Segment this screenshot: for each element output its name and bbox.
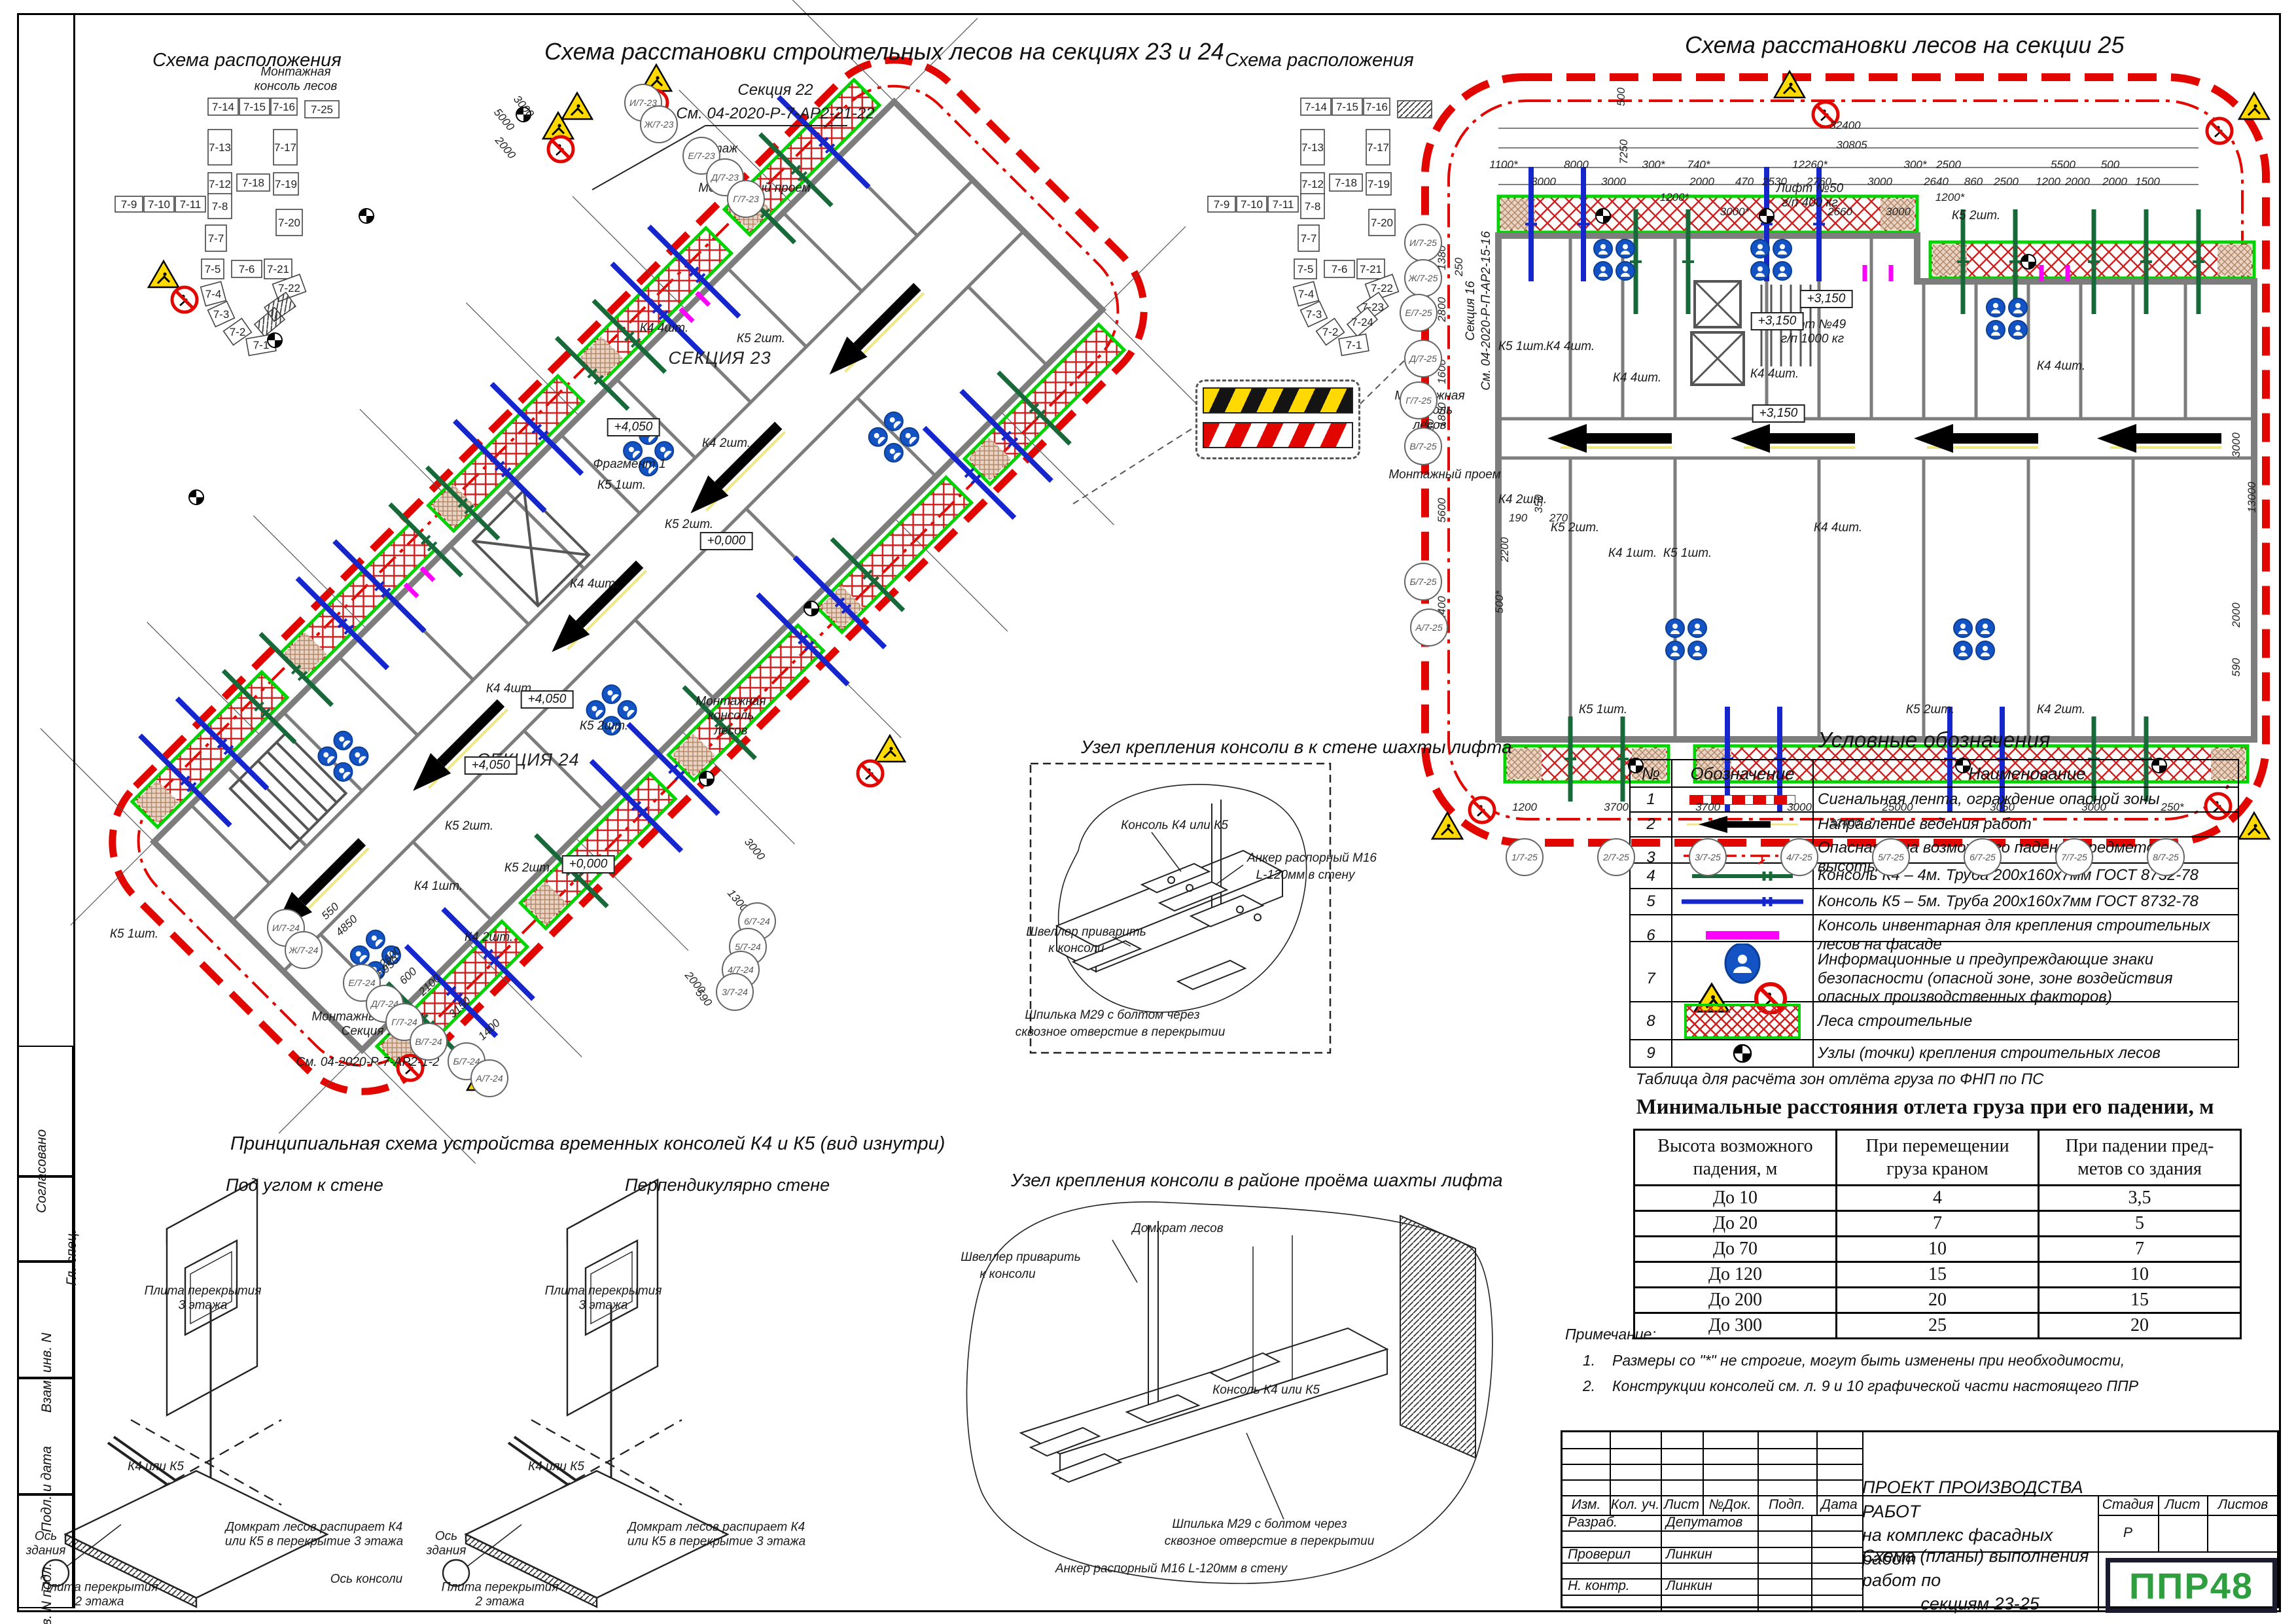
titleblock-stage-header: Лист: [2158, 1495, 2207, 1515]
elevation-mark: +0,000: [562, 855, 615, 874]
black-yellow-tape-icon: [1203, 387, 1353, 414]
legend-row: 7 Информационные и предупреждающие знаки…: [1631, 941, 2238, 1001]
legend-row: 9 Узлы (точки) крепления строительных ле…: [1631, 1039, 2238, 1067]
legend-row-num: 4: [1631, 864, 1671, 888]
node2-label-shveller-2: к консоли: [980, 1267, 1035, 1282]
plan25-dimension: 300*: [1642, 158, 1665, 171]
pr-axisb-2: здания: [427, 1544, 467, 1558]
plan25-dimension: 1200: [2036, 175, 2060, 188]
plan23-label: Монтажная консоль лесов: [255, 65, 338, 95]
drawing-sheet: 7-147-157-167-257-137-177-127-187-197-97…: [0, 0, 2296, 1624]
console-k5-icon: [1680, 896, 1805, 908]
grid-axis-bubble: В/7-24: [410, 1023, 448, 1061]
ft-h3b: метов со здания: [2077, 1159, 2202, 1179]
legend-row: 2 Направление ведения работ: [1631, 811, 2238, 836]
plan25-dimension: 2760: [1807, 175, 1831, 188]
legend-header-num: №: [1631, 760, 1671, 786]
project-title-line1: ПРОЕКТ ПРОИЗВОДСТВА РАБОТ: [1862, 1475, 2098, 1523]
titleblock-header: Дата: [1816, 1495, 1862, 1515]
pl-slab3-1: Плита перекрытия: [145, 1284, 262, 1298]
plan25-dimension: 3000: [1601, 175, 1626, 188]
legend-title: Условные обозначения: [1629, 728, 2239, 752]
plan25-label: К5 1шт.: [1579, 703, 1627, 717]
grid-axis-bubble: И/7-25: [1404, 224, 1442, 262]
plan25-dimension: 3000: [1867, 175, 1892, 188]
plan25-dimension: 1200*: [1935, 191, 1964, 204]
plan25-dimension: 2800: [1436, 297, 1449, 322]
plan25-dimension: 3050: [1990, 801, 2015, 814]
plan25-label: Монтажный проем: [1388, 468, 1500, 482]
grid-axis-bubble: 2/7-25: [1597, 838, 1635, 876]
fall-table-row: До 2075: [1634, 1211, 2241, 1237]
grid-axis-bubble: Г/7-23: [727, 180, 765, 218]
plan25-label: Секция 16: [1464, 281, 1478, 340]
pr-k: К4 или К5: [528, 1460, 584, 1474]
note-1-num: 1.: [1565, 1352, 1612, 1370]
ft-h1a: Высота возможного: [1657, 1136, 1812, 1156]
plan23-label: К4 2шт.: [702, 436, 751, 451]
plan25-label: К4 4шт.: [1750, 367, 1799, 381]
plan25-dimension: 860: [1964, 175, 1983, 188]
fall-distance-block: Таблица для расчёта зон отлёта груза по …: [1565, 1070, 2246, 1339]
fall-table-cell: До 70: [1634, 1237, 1837, 1262]
plan25-dimension: 8000: [1564, 158, 1589, 171]
fall-table-cell: До 120: [1634, 1262, 1837, 1288]
titleblock-role: [1563, 1562, 1666, 1578]
pl-axisk: Ось консоли: [330, 1572, 402, 1587]
titleblock-header: Изм.: [1563, 1495, 1610, 1515]
plan25-dimension: 590: [2230, 658, 2243, 677]
node1-label-anker-1: Анкер распорный М16: [1247, 851, 1377, 866]
plan25-dimension: 1800: [1436, 402, 1449, 427]
node2-label-konsol: Консоль К4 или К5: [1212, 1383, 1320, 1398]
fall-table-cell: 7: [1837, 1211, 2039, 1237]
plan25-label: К4 4шт.: [1546, 340, 1595, 354]
sheet-frame-left-line: [73, 13, 75, 1608]
fall-table-cell: 10: [1837, 1237, 2039, 1262]
plan23-label: К4 4шт.: [640, 321, 688, 336]
plan23-label: К5 1шт.: [597, 478, 646, 493]
red-white-tape-icon: [1203, 422, 1353, 448]
principal-right-subtitle: Перпендикулярно стене: [625, 1175, 830, 1195]
fall-table-cell: До 20: [1634, 1211, 1837, 1237]
plan23-label: К5 1шт.: [110, 927, 158, 942]
pl-slab3-2: 3 этажа: [178, 1299, 227, 1313]
fall-table-cell: 3,5: [2039, 1186, 2241, 1211]
grid-axis-bubble: 3/7-24: [716, 973, 754, 1011]
sidebar-vzam: Взам. инв. N: [39, 1333, 55, 1413]
fall-table-title: Минимальные расстояния отлета груза при …: [1604, 1095, 2246, 1120]
plan23-label: К5 2шт.: [580, 719, 628, 733]
ft-h2b: груза краном: [1886, 1159, 1988, 1179]
plan25-label: К5 1шт.: [1498, 340, 1547, 354]
grid-axis-bubble: 3/7-25: [1689, 838, 1727, 876]
titleblock-person: Депутатов: [1661, 1515, 1763, 1530]
plan25-dimension: 2000: [1689, 175, 1714, 188]
grid-axis-bubble: Ж/7-24: [285, 931, 323, 969]
node1-label-shveller-2: к консоли: [1048, 942, 1104, 956]
legend-row: 8 Леса строительные: [1631, 1001, 2238, 1039]
attachment-node-icon: [1731, 1042, 1754, 1065]
grid-axis-bubble: А/7-24: [470, 1059, 508, 1097]
pr-jack-2: или К5 в перекрытие 3 этажа: [627, 1535, 805, 1549]
plan25-label: К5 2шт.: [1906, 703, 1954, 717]
plan23-label: К4 2шт.: [465, 930, 513, 945]
fall-table-row: До 70107: [1634, 1237, 2241, 1262]
node1-label-konsol: Консоль К4 или К5: [1121, 819, 1228, 833]
titleblock-person: [1661, 1562, 1763, 1578]
grid-axis-bubble: Б/7-25: [1404, 563, 1442, 601]
plan23-label: К5 2шт.: [504, 861, 553, 875]
legend-header-name: Наименование: [1812, 760, 2240, 786]
grid-axis-bubble: 6/7-25: [1964, 838, 2002, 876]
legend-row-num: 5: [1631, 889, 1671, 914]
ft-h3a: При падении пред-: [2066, 1136, 2214, 1156]
plan25-dimension: 470: [1735, 175, 1754, 188]
grid-axis-bubble: 7/7-25: [2055, 838, 2093, 876]
legend-row: 1 Сигнальная лента, ограждение опасной з…: [1631, 786, 2238, 811]
elevation-mark: +4,050: [607, 418, 660, 436]
loc2-title: Схема расположения: [1225, 50, 1414, 71]
plan25-dimension: 25000: [1882, 801, 1913, 814]
plan25-dimension: 2500: [1994, 175, 2019, 188]
fall-table-cell: До 200: [1634, 1288, 1837, 1313]
legend: Условные обозначения № Обозначение Наиме…: [1629, 728, 2239, 1068]
elevation-mark: +3,150: [1751, 312, 1804, 330]
node1-label-shpilka-2: сквозное отверстие в перекрытии: [1016, 1025, 1226, 1040]
plan25-dimension: 300*: [1904, 158, 1927, 171]
legend-row-name: Леса строительные: [1812, 1002, 2240, 1040]
pr-slab2-1: Плита перекрытия: [442, 1581, 559, 1595]
legend-row-num: 2: [1631, 813, 1671, 836]
plan25-label: К4 1шт.: [1608, 546, 1657, 561]
pr-slab3-2: 3 этажа: [578, 1299, 627, 1313]
fall-table-cell: 10: [2039, 1262, 2241, 1288]
legend-row-symbol: [1671, 1040, 1812, 1067]
legend-table: № Обозначение Наименование 1 Сигнальная …: [1629, 759, 2239, 1068]
plan25-label: К4 4шт.: [1613, 371, 1661, 385]
plan25-dimension: 500*: [1493, 591, 1506, 614]
plan25-dimension: 740*: [1687, 158, 1710, 171]
plan25-dimension: 3000: [1787, 801, 1812, 814]
grid-axis-bubble: 5/7-25: [1872, 838, 1910, 876]
grid-axis-bubble: А/7-25: [1410, 609, 1448, 646]
fall-table-cell: 7: [2039, 1237, 2241, 1262]
inventory-console-icon: [1706, 931, 1779, 940]
sidebar-glspec: Гл. спец.: [64, 1229, 80, 1286]
note-2-num: 2.: [1565, 1377, 1612, 1396]
signal-tape-fragment: [1195, 380, 1360, 459]
plan25-dimension: 3000: [2081, 801, 2106, 814]
node2-label-shveller-1: Швеллер приварить: [961, 1250, 1080, 1265]
plan25-dimension: 2000: [2102, 175, 2127, 188]
node2-label-anker: Анкер распорный М16 L-120мм в стену: [1055, 1562, 1287, 1576]
plan25-label: К4 4шт.: [2037, 359, 2085, 374]
note-2-text: Конструкции консолей см. л. 9 и 10 графи…: [1612, 1377, 2138, 1396]
grid-axis-bubble: В/7-25: [1404, 427, 1442, 465]
plan25-dimension: 3700: [1695, 801, 1720, 814]
plan25-label: 250: [1453, 258, 1466, 276]
titleblock-role: Разраб.: [1563, 1515, 1666, 1530]
plan25-dimension: 500: [2101, 158, 2119, 171]
pl-jack-2: или К5 в перекрытие 3 этажа: [225, 1535, 403, 1549]
plan25-dimension: 12260*: [1792, 158, 1828, 171]
node2-label-shpilka-1: Шпилька М29 с болтом через: [1172, 1517, 1347, 1532]
legend-row-num: 1: [1631, 788, 1671, 811]
plan23-title: Схема расстановки строительных лесов на …: [544, 38, 1224, 65]
titleblock-header: №Док.: [1703, 1495, 1757, 1515]
fall-table-cell: До 10: [1634, 1186, 1837, 1211]
node1-label-shveller-1: Швеллер приварить: [1026, 925, 1146, 940]
plan23-label: К5 2шт.: [445, 819, 493, 834]
work-direction-icon: [1687, 815, 1798, 834]
plan25-dimension: 3700: [1604, 801, 1629, 814]
plan25-dimension: 2000: [2230, 603, 2243, 627]
pr-axisb-1: Ось: [435, 1530, 457, 1544]
ft-h1b: падения, м: [1693, 1159, 1778, 1179]
titleblock-header: Лист: [1661, 1495, 1703, 1515]
scaffolding-icon: [1684, 1004, 1801, 1039]
notes-label: Примечание:: [1565, 1326, 2138, 1344]
plan25-title: Схема расстановки лесов на секции 25: [1685, 31, 2124, 59]
plan25-dimension: 1500: [2135, 175, 2160, 188]
sidebar-podl: Подл. и дата: [39, 1446, 55, 1532]
plan25-dimension: 7250: [1617, 139, 1631, 164]
pr-jack-1: Домкрат лесов распирает К4: [628, 1521, 805, 1534]
legend-row-symbol: [1671, 889, 1812, 914]
fall-table-cell: 5: [2039, 1211, 2241, 1237]
elevation-mark: +4,050: [465, 756, 518, 775]
legend-row: 6 Консоль инвентарная для крепления стро…: [1631, 914, 2238, 941]
plan25-dimension: 2530: [1762, 175, 1787, 188]
plan25-label: К4 4шт.: [1814, 521, 1862, 535]
plan23-label: Монтажная консоль лесов: [696, 694, 766, 738]
principal-title: Принципиальная схема устройства временны…: [230, 1133, 945, 1155]
doc-title-line2: секциям 23-25: [1920, 1592, 2039, 1615]
titleblock-person: Линкин: [1661, 1578, 1763, 1594]
fall-table: Высота возможногопадения, м При перемеще…: [1633, 1129, 2242, 1339]
legend-header-symbol: Обозначение: [1671, 760, 1812, 786]
elevation-mark: +0,000: [700, 532, 753, 550]
legend-row-name: Направление ведения работ: [1812, 813, 2240, 836]
plan25-dimension: 32400: [1829, 119, 1860, 132]
node2-label-domkrat: Домкрат лесов: [1132, 1222, 1223, 1236]
plan25-dimension: 5500: [2051, 158, 2075, 171]
fall-table-cell: 4: [1837, 1186, 2039, 1211]
plan25-dimension: 13000: [2246, 482, 2259, 512]
plan25-dimension: 270: [1549, 512, 1568, 525]
fall-table-cell: 20: [1837, 1288, 2039, 1313]
plan25-dimension: 5600: [1436, 498, 1449, 523]
legend-row: 5 Консоль К5 – 5м. Труба 200х160х7мм ГОС…: [1631, 888, 2238, 914]
plan25-dimension: 2500: [1936, 158, 1961, 171]
grid-axis-bubble: Г/7-25: [1400, 381, 1438, 419]
plan25-dimension: 190: [1509, 512, 1527, 525]
titleblock-role: [1563, 1530, 1666, 1546]
node1-label-anker-2: L-120мм в стену: [1256, 868, 1355, 883]
titleblock-person: Линкин: [1661, 1547, 1763, 1562]
node1-label-shpilka-1: Шпилька М29 с болтом через: [1025, 1008, 1199, 1023]
principal-left-subtitle: Под углом к стене: [226, 1175, 383, 1195]
titleblock-person: [1661, 1530, 1763, 1546]
note-1-text: Размеры со "*" не строгие, могут быть из…: [1612, 1352, 2125, 1370]
plan25-dimension: 32400: [1829, 817, 1860, 830]
ft-h2a: При перемещении: [1865, 1136, 2009, 1156]
notes: Примечание: 1.Размеры со "*" не строгие,…: [1565, 1326, 2138, 1396]
plan23-label: Секция 22: [737, 81, 813, 99]
node1-title: Узел крепления консоли в к стене шахты л…: [1081, 737, 1512, 758]
legend-row-name: Узлы (точки) крепления строительных лесо…: [1812, 1040, 2240, 1067]
plan25-dimension: 3000*: [1720, 205, 1749, 219]
fall-table-cell: 15: [2039, 1288, 2241, 1313]
plan23-label: См. 04-2020-Р-7-АР2-21-22: [676, 105, 874, 123]
pr-slab3-1: Плита перекрытия: [545, 1284, 662, 1298]
grid-axis-bubble: Ж/7-25: [1404, 259, 1442, 297]
pl-k: К4 или К5: [128, 1460, 184, 1474]
elevation-mark: +3,150: [1800, 290, 1853, 308]
plan25-dimension: 1200*: [1660, 191, 1689, 204]
titleblock-header: Подп.: [1757, 1495, 1816, 1515]
plan23-label: СЕКЦИЯ 23: [668, 348, 771, 369]
plan25-dimension: 3000: [1886, 205, 1911, 219]
plan25-dimension: 500: [1615, 88, 1628, 106]
plan25-dimension: 3000: [2230, 432, 2243, 457]
sidebar-inv: Инв. N подл.: [39, 1563, 55, 1624]
plan25-label: См. 04-2020-Р-П-АР2-15-16: [1479, 231, 1494, 390]
titleblock-stage-header: Листов: [2207, 1495, 2279, 1515]
legend-row-num: 8: [1631, 1002, 1671, 1040]
grid-axis-bubble: Е/7-25: [1400, 294, 1438, 332]
plan25-dimension: 3000: [1531, 175, 1556, 188]
plan23-label: Фрагмент 1: [593, 457, 665, 472]
fall-table-cell: 15: [1837, 1262, 2039, 1288]
ppr48-logo: ППР48: [2106, 1558, 2277, 1613]
legend-row-name: Консоль К5 – 5м. Труба 200х160х7мм ГОСТ …: [1812, 889, 2240, 914]
legend-row-num: 9: [1631, 1040, 1671, 1067]
titleblock-stage-header: Стадия: [2098, 1495, 2158, 1515]
titleblock-role: [1563, 1595, 1666, 1610]
titleblock-header: Кол. уч.: [1610, 1495, 1661, 1515]
plan25-dimension: 2640: [1924, 175, 1949, 188]
node2-label-shpilka-2: сквозное отверстие в перекрытии: [1165, 1534, 1375, 1549]
plan25-dimension: 350: [1532, 495, 1545, 513]
titleblock-role: Проверил: [1563, 1547, 1666, 1562]
legend-row-symbol: [1671, 813, 1812, 836]
fall-table-row: До 1043,5: [1634, 1186, 2241, 1211]
plan23-label: К5 2шт.: [737, 332, 785, 346]
plan25-dimension: 30805: [1836, 139, 1867, 152]
titleblock-role: Н. контр.: [1563, 1578, 1666, 1594]
plan25-dimension: 250*: [2161, 801, 2184, 814]
elevation-mark: +4,050: [521, 690, 574, 709]
plan25-label: К5 2шт.: [1952, 209, 2000, 223]
fall-table-caption: Таблица для расчёта зон отлёта груза по …: [1636, 1070, 2246, 1089]
plan23-label: К4 1шт.: [414, 879, 463, 894]
plan25-dimension: 1200: [1512, 801, 1537, 814]
grid-axis-bubble: 4/7-25: [1780, 838, 1818, 876]
pr-slab2-2: 2 этажа: [475, 1595, 524, 1609]
legend-row-symbol: [1671, 1002, 1812, 1040]
pl-slab2-2: 2 этажа: [75, 1595, 124, 1609]
titleblock-person: [1661, 1595, 1763, 1610]
elevation-mark: +3,150: [1752, 404, 1805, 423]
pl-jack-1: Домкрат лесов распирает К4: [226, 1521, 403, 1534]
plan25-label: К5 1шт.: [1663, 546, 1712, 561]
grid-axis-bubble: Д/7-25: [1404, 340, 1442, 378]
plan25-dimension: 2000: [2065, 175, 2090, 188]
titleblock-stage-value: Р: [2098, 1515, 2158, 1551]
grid-axis-bubble: Ж/7-23: [640, 105, 678, 143]
fall-table-row: До 2002015: [1634, 1288, 2241, 1313]
grid-axis-bubble: 1/7-25: [1506, 838, 1544, 876]
plan23-label: К5 2шт.: [665, 518, 713, 532]
sidebar-soglasovano: Согласовано: [34, 1129, 50, 1213]
fall-table-row: До 1201510: [1634, 1262, 2241, 1288]
plan25-label: К4 2шт.: [2037, 703, 2085, 717]
plan25-dimension: 2200: [1498, 537, 1511, 562]
plan25-dimension: 2660: [1828, 205, 1852, 219]
plan25-dimension: 1100*: [1489, 158, 1517, 171]
plan23-label: К4 4шт.: [570, 577, 618, 591]
title-block: ПРОЕКТ ПРОИЗВОДСТВА РАБОТ на комплекс фа…: [1561, 1430, 2279, 1608]
node2-title: Узел крепления консоли в районе проёма ш…: [1011, 1170, 1503, 1191]
grid-axis-bubble: 8/7-25: [2147, 838, 2185, 876]
